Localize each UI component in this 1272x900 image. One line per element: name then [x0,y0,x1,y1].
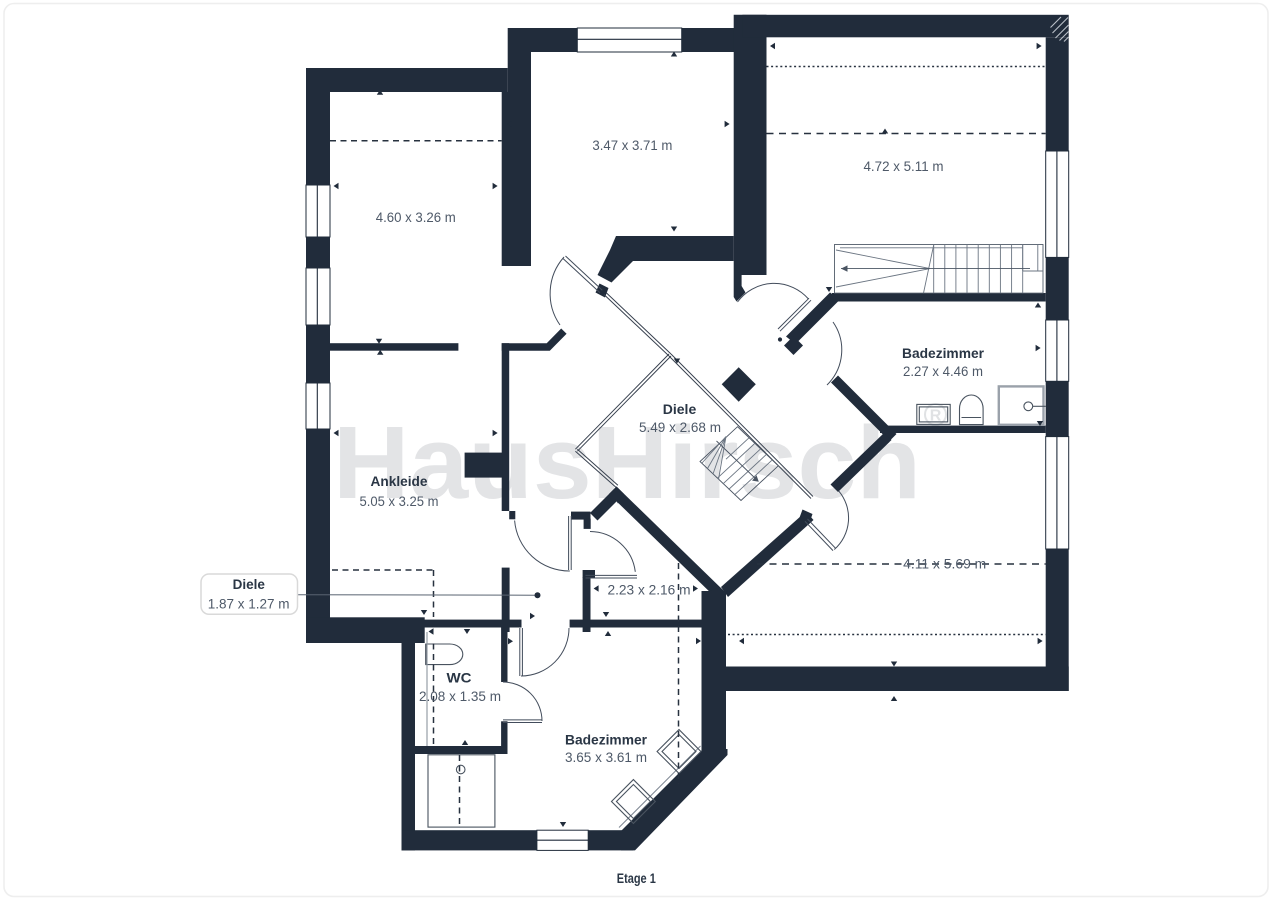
svg-text:5.05 x 3.25 m: 5.05 x 3.25 m [360,494,439,509]
svg-text:2.27 x 4.46 m: 2.27 x 4.46 m [903,364,983,379]
svg-text:WC: WC [447,670,472,685]
svg-text:2.23 x 2.16 m: 2.23 x 2.16 m [608,583,691,598]
svg-text:Ankleide: Ankleide [371,474,428,489]
svg-text:3.65 x 3.61 m: 3.65 x 3.61 m [565,750,647,765]
svg-text:4.72 x 5.11 m: 4.72 x 5.11 m [864,159,944,174]
svg-text:1.87 x 1.27 m: 1.87 x 1.27 m [208,596,290,611]
svg-text:3.47 x 3.71 m: 3.47 x 3.71 m [592,138,672,153]
svg-text:Diele: Diele [233,577,266,592]
svg-text:2.08 x 1.35 m: 2.08 x 1.35 m [419,689,501,704]
svg-text:Etage 1: Etage 1 [617,871,656,886]
svg-text:Diele: Diele [663,402,697,417]
svg-text:4.11 x 5.69 m: 4.11 x 5.69 m [903,557,986,572]
svg-text:4.60 x 3.26 m: 4.60 x 3.26 m [376,210,456,225]
svg-text:5.49 x 2.68 m: 5.49 x 2.68 m [639,420,721,435]
svg-text:Badezimmer: Badezimmer [902,346,985,361]
svg-text:Badezimmer: Badezimmer [565,733,648,748]
